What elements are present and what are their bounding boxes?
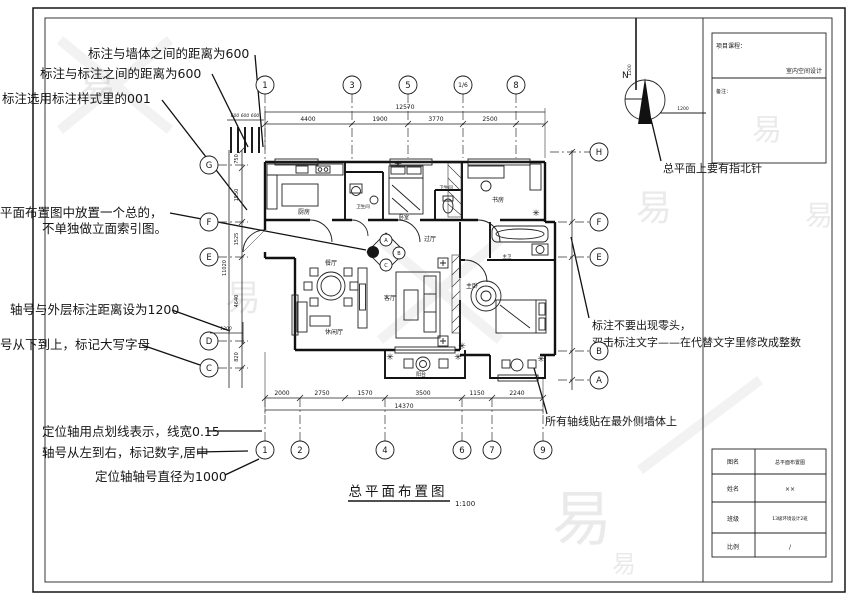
axis-bubble-label: 4: [382, 446, 387, 456]
axis-bubble-label: D: [206, 337, 213, 347]
callout-dim-style-001: 标注选用标注样式里的001: [2, 91, 151, 106]
north-arrow-needle: [638, 78, 652, 124]
axis-bubble-label: B: [596, 347, 602, 357]
index-letter-b: B: [397, 251, 401, 257]
watermark-glyph: 易: [636, 188, 672, 229]
dim-top-segment: 4400: [300, 116, 315, 123]
room-label-bath: 卫生间: [356, 203, 370, 210]
index-letter-a: A: [384, 238, 388, 244]
dim-top-segment: 1900: [372, 116, 387, 123]
titleblock-row-label: 图名: [727, 458, 739, 466]
dim-bottom-segment: 2750: [314, 390, 329, 397]
dim-axis-offset: 1200: [220, 326, 232, 332]
north-arrow: N 1200 1200 总平面上要有指北针: [622, 18, 762, 175]
dim-bottom-segment: 1570: [357, 390, 372, 397]
dim-bottom-segment: 3500: [415, 390, 430, 397]
room-label-master: 主卧: [466, 282, 478, 290]
axis-bubble-label: A: [596, 376, 602, 386]
dim-left-segment: 820: [234, 352, 240, 362]
titleblock-row-value: ××: [785, 486, 795, 493]
room-label-master-bath: 主卫: [503, 253, 512, 260]
axis-bubble-label: 1: [262, 81, 267, 91]
dim-bottom-segment: 2240: [509, 390, 524, 397]
plant-icon: ✳: [454, 353, 462, 363]
callout-axis-on-wall: 所有轴线贴在最外侧墙体上: [545, 414, 677, 428]
north-dim-horizontal: 1200: [677, 106, 689, 112]
titleblock-row-label: 班级: [727, 515, 739, 523]
room-label-dining: 餐厅: [325, 259, 337, 267]
axis-bubble-label: E: [596, 253, 601, 263]
watermark-glyph: 易: [752, 113, 782, 148]
axis-bubble-label: G: [206, 161, 213, 171]
room-label-kitchen: 厨房: [298, 208, 310, 216]
room-label-leisure: 休闲厅: [325, 328, 343, 336]
watermark-glyph: 易: [552, 485, 612, 555]
dim-left-segment: 1550: [234, 189, 240, 202]
axis-bubble-label: 1: [262, 446, 267, 456]
room-label-bedroom: 卧室: [399, 214, 409, 221]
axis-bubble-label: 6: [459, 446, 464, 456]
dim-bottom-segment: 1150: [469, 390, 484, 397]
dim-left-segment: 1525: [234, 233, 240, 246]
dim-left-total: 11020: [222, 260, 228, 276]
study-furniture: [468, 164, 541, 191]
titleblock-note-label: 备注：: [716, 88, 731, 95]
plant-icon: ✳: [458, 342, 466, 352]
titleblock-row-value: /: [789, 544, 792, 551]
axis-bubble-label: F: [597, 218, 602, 228]
callout-axis-linetype: 定位轴用点划线表示，线宽0.15: [42, 424, 220, 439]
master-furniture: [471, 226, 548, 333]
titleblock-row-label: 姓名: [727, 485, 739, 493]
callout-north-note: 总平面上要有指北针: [663, 161, 762, 175]
living-furniture: [358, 258, 448, 346]
plant-icon: ✳: [532, 209, 540, 219]
axis-bubble-label: 8: [513, 81, 518, 91]
callout-axis-diameter: 定位轴轴号直径为1000: [95, 469, 227, 484]
callout-index-note-line2: 不单独做立面索引图。: [42, 221, 167, 236]
drawing-scale: 1:100: [455, 500, 475, 508]
north-dim-vertical: 1200: [627, 64, 633, 76]
room-label-study: 书房: [492, 196, 504, 204]
callout-no-fraction-line1: 标注不要出现零头，: [592, 318, 691, 332]
titleblock-course-value: 室内空间设计: [786, 67, 822, 75]
axis-bubble-label: 3: [349, 81, 354, 91]
bedroom-furniture: [389, 166, 423, 214]
plant-icon: ✳: [394, 160, 402, 170]
index-letter-c: C: [384, 263, 388, 269]
drawing-canvas: 易 易 易 易 易 易 易 项目课程： 室内空间设计 备注： 图名 总平面布置图…: [0, 0, 861, 600]
dim-wall-spacing: 600 600 600: [231, 113, 260, 119]
dim-bottom-segment: 2000: [274, 390, 289, 397]
room-label-bath2: 卫生间: [439, 184, 453, 191]
callout-dim-dim-600: 标注与标注之间的距离为600: [40, 66, 201, 81]
axis-bubble-label: 2: [297, 446, 302, 456]
callout-index-note-line1: 平面布置图中放置一个总的，: [0, 205, 163, 220]
dim-top-segment: 2500: [482, 116, 497, 123]
titleblock-row-label: 比例: [727, 543, 739, 551]
dim-bottom-total: 14370: [394, 403, 413, 410]
callout-axis-letters: 号从下到上，标记大写字母: [0, 337, 150, 352]
watermark-glyph: 易: [805, 199, 833, 232]
kitchen-furniture: [267, 164, 343, 209]
dim-top-segment: 3770: [428, 116, 443, 123]
dim-top-total: 12570: [395, 104, 414, 111]
balcony2-furniture: [502, 359, 536, 371]
plant-icon: ✳: [386, 353, 394, 363]
drawing-title-group: 总平面布置图 1:100: [348, 484, 475, 508]
axis-bubble-label: 1/6: [458, 82, 468, 89]
titleblock-course-label: 项目课程：: [716, 42, 746, 50]
titleblock-row-value: 13级环境设计2班: [772, 515, 808, 522]
axis-bubbles-right: H F E B A: [550, 143, 608, 389]
axis-bubble-label: 9: [540, 446, 545, 456]
room-label-balcony: 阳台: [416, 371, 426, 378]
axis-bubble-label: 5: [405, 81, 410, 91]
axis-bubble-label: C: [206, 364, 212, 374]
axis-bubble-label: E: [206, 253, 211, 263]
dining-furniture: [297, 268, 358, 332]
callout-axis-numbers: 轴号从左到右，标记数字,居中: [42, 445, 208, 460]
drawing-frame: 项目课程： 室内空间设计 备注： 图名 总平面布置图 姓名 ×× 班级 13级环…: [33, 8, 845, 592]
axis-bubble-label: F: [207, 218, 212, 228]
windows: [275, 159, 538, 381]
dim-left-segment: 4640: [234, 295, 240, 308]
room-label-living: 客厅: [384, 294, 396, 302]
plant-icon: ✳: [537, 355, 545, 365]
elevation-index-symbol: A B C: [367, 233, 405, 271]
balcony-furniture: [404, 357, 448, 371]
watermark-glyph: 易: [612, 550, 636, 578]
drawing-title: 总平面布置图: [349, 484, 448, 500]
callout-axis-offset-1200: 轴号与外层标注距离设为1200: [10, 302, 179, 317]
cad-drawing-screenshot: 易 易 易 易 易 易 易 项目课程： 室内空间设计 备注： 图名 总平面布置图…: [0, 0, 861, 600]
axis-bubble-label: 7: [489, 446, 494, 456]
watermark-glyph: 易: [225, 278, 261, 319]
callout-no-fraction-line2: 双击标注文字——在代替文字里修改成整数: [592, 335, 801, 349]
floor-plan: ✳ ✳ ✳ ✳ ✳ ✳ A B C 厨房 卫生间 卫生间 卧室 书房 过厅 餐厅…: [243, 159, 555, 381]
axis-bubble-label: H: [596, 148, 602, 158]
room-label-hall: 过厅: [424, 235, 436, 243]
callout-dim-wall-600: 标注与墙体之间的距离为600: [88, 46, 249, 61]
titleblock-row-value: 总平面布置图: [775, 459, 805, 466]
dim-left-segment: 750: [234, 154, 240, 164]
